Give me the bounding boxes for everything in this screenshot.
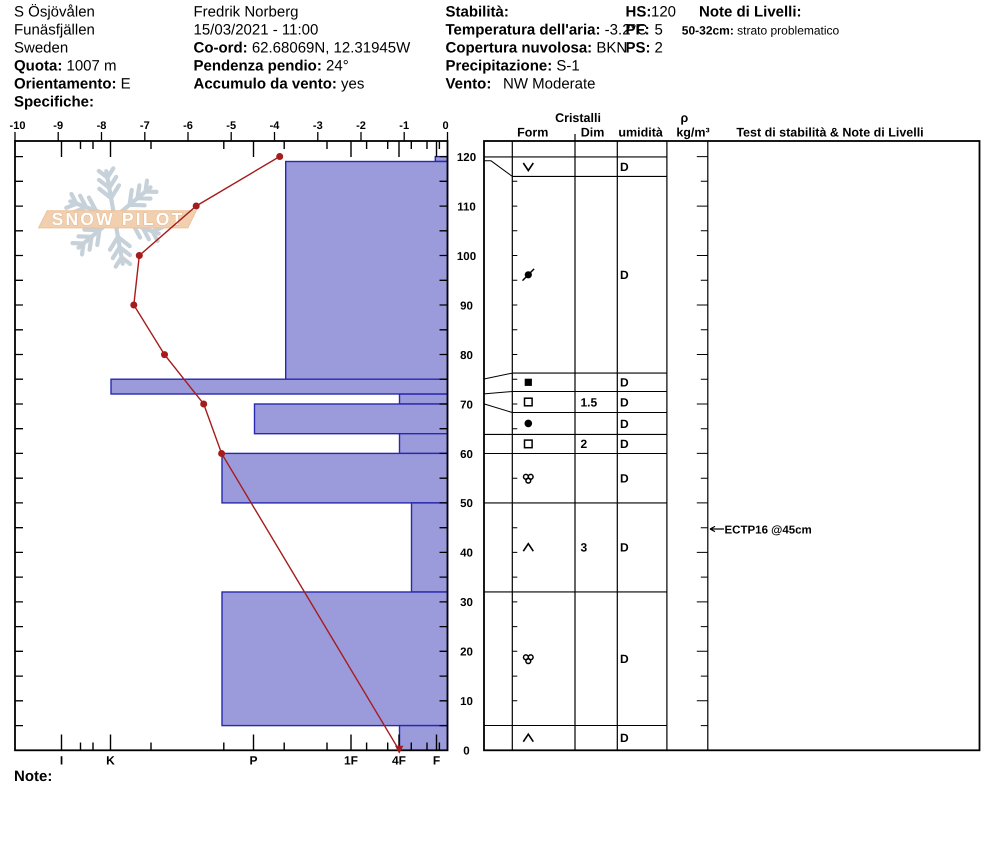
svg-text:Dim: Dim <box>581 126 605 140</box>
svg-text:-5: -5 <box>226 120 236 132</box>
svg-text:Co-ord: 62.68069N, 12.31945W: Co-ord: 62.68069N, 12.31945W <box>194 39 412 56</box>
svg-text:I: I <box>60 754 63 768</box>
svg-text:umidità: umidità <box>618 126 662 140</box>
svg-text:-7: -7 <box>140 120 150 132</box>
svg-text:D: D <box>620 160 629 174</box>
svg-text:Precipitazione: S-1: Precipitazione: S-1 <box>446 57 580 74</box>
svg-text:SNOW PILOT: SNOW PILOT <box>52 209 185 229</box>
svg-text:-6: -6 <box>183 120 193 132</box>
svg-text:ρ: ρ <box>681 111 689 125</box>
svg-text:70: 70 <box>460 399 473 411</box>
svg-text:60: 60 <box>460 449 473 461</box>
svg-text:Form: Form <box>517 126 548 140</box>
svg-text:Note:: Note: <box>14 768 52 785</box>
svg-text:10: 10 <box>460 696 473 708</box>
svg-text:Accumulo da vento: yes: Accumulo da vento: yes <box>194 75 365 92</box>
svg-text:0: 0 <box>442 120 448 132</box>
svg-text:120: 120 <box>457 152 476 164</box>
svg-text:-10: -10 <box>10 120 26 132</box>
svg-text:3: 3 <box>581 541 588 555</box>
svg-text:2: 2 <box>581 437 588 451</box>
svg-text:-8: -8 <box>97 120 107 132</box>
svg-text:Specifiche:: Specifiche: <box>14 93 94 110</box>
svg-text:Note di Livelli:: Note di Livelli: <box>699 3 802 20</box>
svg-text:-3: -3 <box>313 120 323 132</box>
svg-text:-1: -1 <box>399 120 409 132</box>
svg-text:20: 20 <box>460 647 473 659</box>
svg-text:110: 110 <box>457 201 476 213</box>
svg-text:K: K <box>106 754 115 768</box>
svg-text:-4: -4 <box>270 120 281 132</box>
svg-text:D: D <box>620 472 629 486</box>
svg-text:1F: 1F <box>344 754 358 768</box>
svg-text:30: 30 <box>460 597 473 609</box>
svg-text:4F: 4F <box>392 754 406 768</box>
svg-text:D: D <box>620 652 629 666</box>
svg-text:Fredrik Norberg: Fredrik Norberg <box>194 3 299 20</box>
svg-text:P: P <box>249 754 257 768</box>
svg-text:40: 40 <box>460 548 473 560</box>
svg-text:90: 90 <box>460 300 473 312</box>
svg-text:Orientamento: E: Orientamento: E <box>14 75 131 92</box>
svg-text:Copertura nuvolosa: BKN: Copertura nuvolosa: BKN <box>446 39 628 56</box>
svg-text:Temperatura dell'aria: -3.2°C: Temperatura dell'aria: -3.2°C <box>446 21 648 38</box>
svg-text:Stabilità:: Stabilità: <box>446 3 509 20</box>
svg-text:ECTP16 @45cm: ECTP16 @45cm <box>725 524 812 536</box>
svg-text:kg/m³: kg/m³ <box>676 126 709 140</box>
svg-text:HS:120: HS:120 <box>626 3 677 20</box>
svg-text:PS:2: PS:2 <box>626 39 663 56</box>
svg-text:Vento:NW Moderate: Vento:NW Moderate <box>446 75 596 92</box>
svg-text:50-32cm: strato problematico: 50-32cm: strato problematico <box>682 24 840 38</box>
svg-text:Quota: 1007 m: Quota: 1007 m <box>14 57 117 74</box>
svg-text:-9: -9 <box>53 120 63 132</box>
svg-text:PF:5: PF:5 <box>626 21 663 38</box>
svg-text:50: 50 <box>460 498 473 510</box>
svg-text:D: D <box>620 731 629 745</box>
svg-text:-2: -2 <box>356 120 366 132</box>
svg-text:15/03/2021 - 11:00: 15/03/2021 - 11:00 <box>194 21 319 38</box>
svg-text:D: D <box>620 541 629 555</box>
svg-text:Sweden: Sweden <box>14 39 68 56</box>
svg-text:Cristalli: Cristalli <box>555 111 601 125</box>
svg-text:0: 0 <box>463 746 469 758</box>
svg-text:Pendenza pendio: 24°: Pendenza pendio: 24° <box>194 57 349 74</box>
svg-text:S Ösjövålen: S Ösjövålen <box>14 3 95 20</box>
svg-text:D: D <box>620 268 629 282</box>
svg-text:1.5: 1.5 <box>581 395 598 409</box>
svg-text:80: 80 <box>460 350 473 362</box>
svg-text:F: F <box>433 754 440 768</box>
svg-text:100: 100 <box>457 251 476 263</box>
svg-text:D: D <box>620 417 629 431</box>
svg-text:D: D <box>620 437 629 451</box>
svg-text:D: D <box>620 376 629 390</box>
svg-text:Funäsfjällen: Funäsfjällen <box>14 21 95 38</box>
svg-text:Test di stabilità & Note di Li: Test di stabilità & Note di Livelli <box>736 126 923 140</box>
svg-text:D: D <box>620 395 629 409</box>
